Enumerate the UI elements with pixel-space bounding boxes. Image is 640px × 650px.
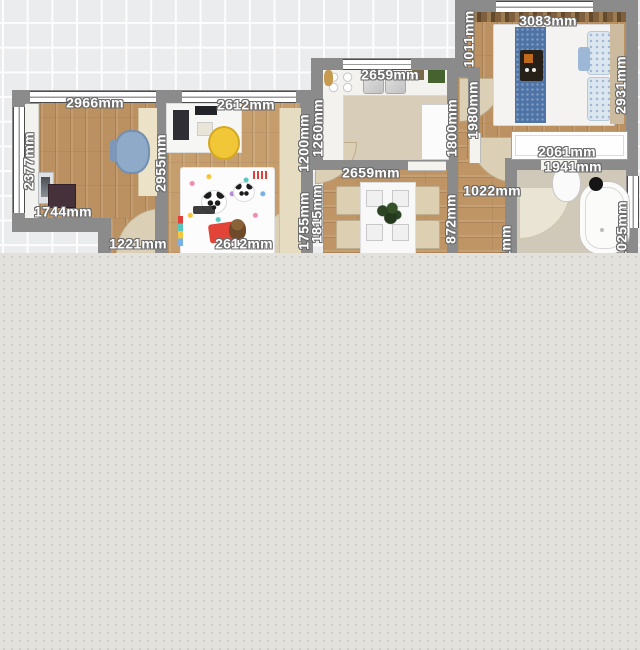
wall-hallway-jog[interactable] xyxy=(455,67,480,77)
bed-tray-food xyxy=(524,54,533,63)
kids-desk-monitor xyxy=(173,110,189,140)
mat-red-writing xyxy=(253,171,269,179)
mat-black-sticker xyxy=(193,206,215,214)
dim-dining-left: 1815mm xyxy=(309,185,324,243)
dining-chair-1[interactable] xyxy=(336,186,362,215)
office-chair-back xyxy=(110,140,117,162)
dim-office-left: 2377mm xyxy=(21,132,36,190)
kitchen-bottle xyxy=(324,70,333,86)
bathtub-drain xyxy=(600,228,604,232)
dining-place-setting-3 xyxy=(366,224,383,241)
kitchen-dining-opening[interactable] xyxy=(408,161,446,171)
dim-kids-top: 2612mm xyxy=(217,97,275,112)
dim-kids-bottom: 2612mm xyxy=(215,236,273,251)
dim-bedroom-right: 2931mm xyxy=(613,56,628,114)
dim-kitchen-top: 2659mm xyxy=(361,67,419,82)
dining-chair-3[interactable] xyxy=(414,186,440,215)
bathtub-faucet[interactable] xyxy=(589,177,603,191)
dining-chair-4[interactable] xyxy=(414,220,440,249)
dim-office-bottom-left: 1744mm xyxy=(34,204,92,219)
bed-tray-cup-1 xyxy=(525,68,529,72)
dining-place-setting-4 xyxy=(392,224,409,241)
dim-bathroom-top: 1941mm xyxy=(544,159,602,174)
wall-office-bottom-left[interactable] xyxy=(12,218,110,232)
floorplan-editor-stage: 2966mm 2377mm 1744mm 2955mm 1221mm 2612m… xyxy=(0,0,640,650)
dim-bathroom-right: 1025mm xyxy=(614,201,629,253)
mat-panda-small xyxy=(233,182,255,202)
dim-office-right: 2955mm xyxy=(153,134,168,192)
workspace-background[interactable] xyxy=(0,253,640,650)
dim-kitchen-left: 1260mm xyxy=(310,99,325,157)
dining-centerpiece-plant[interactable] xyxy=(373,200,405,227)
kitchen-plant[interactable] xyxy=(428,70,445,83)
bedroom-bed[interactable] xyxy=(493,24,615,126)
dining-chair-2[interactable] xyxy=(336,220,362,249)
dim-hallway-left: 861mm xyxy=(498,225,513,253)
bed-pillow-2 xyxy=(587,77,611,121)
dim-hallway-width: 1022mm xyxy=(463,183,521,198)
office-chair-blue[interactable] xyxy=(114,130,150,174)
plan-canvas[interactable]: 2966mm 2377mm 1744mm 2955mm 1221mm 2612m… xyxy=(0,0,640,253)
dim-bedroom-top: 3083mm xyxy=(519,13,577,28)
dim-dining-top: 2659mm xyxy=(342,165,400,180)
kids-chair-yellow[interactable] xyxy=(208,126,240,160)
bed-pillow-small xyxy=(578,47,590,71)
dining-table[interactable] xyxy=(360,182,416,253)
dim-office-top: 2966mm xyxy=(66,95,124,110)
dim-bedroom-left-upper: 1011mm xyxy=(461,10,476,67)
dim-office-bottom: 1221mm xyxy=(109,236,167,251)
kids-desk-keyboard xyxy=(195,106,217,115)
dim-kitchen-right: 1800mm xyxy=(444,99,459,157)
kids-bookshelf-strip xyxy=(178,216,183,246)
bed-tray-cup-2 xyxy=(532,68,536,72)
kitchen-counter-left[interactable] xyxy=(323,95,344,160)
bed-tray xyxy=(520,50,543,81)
dim-bedroom-left-lower: 1980mm xyxy=(465,81,480,139)
bed-pillow-1 xyxy=(587,31,611,75)
dim-dining-right: 872mm xyxy=(443,194,458,244)
